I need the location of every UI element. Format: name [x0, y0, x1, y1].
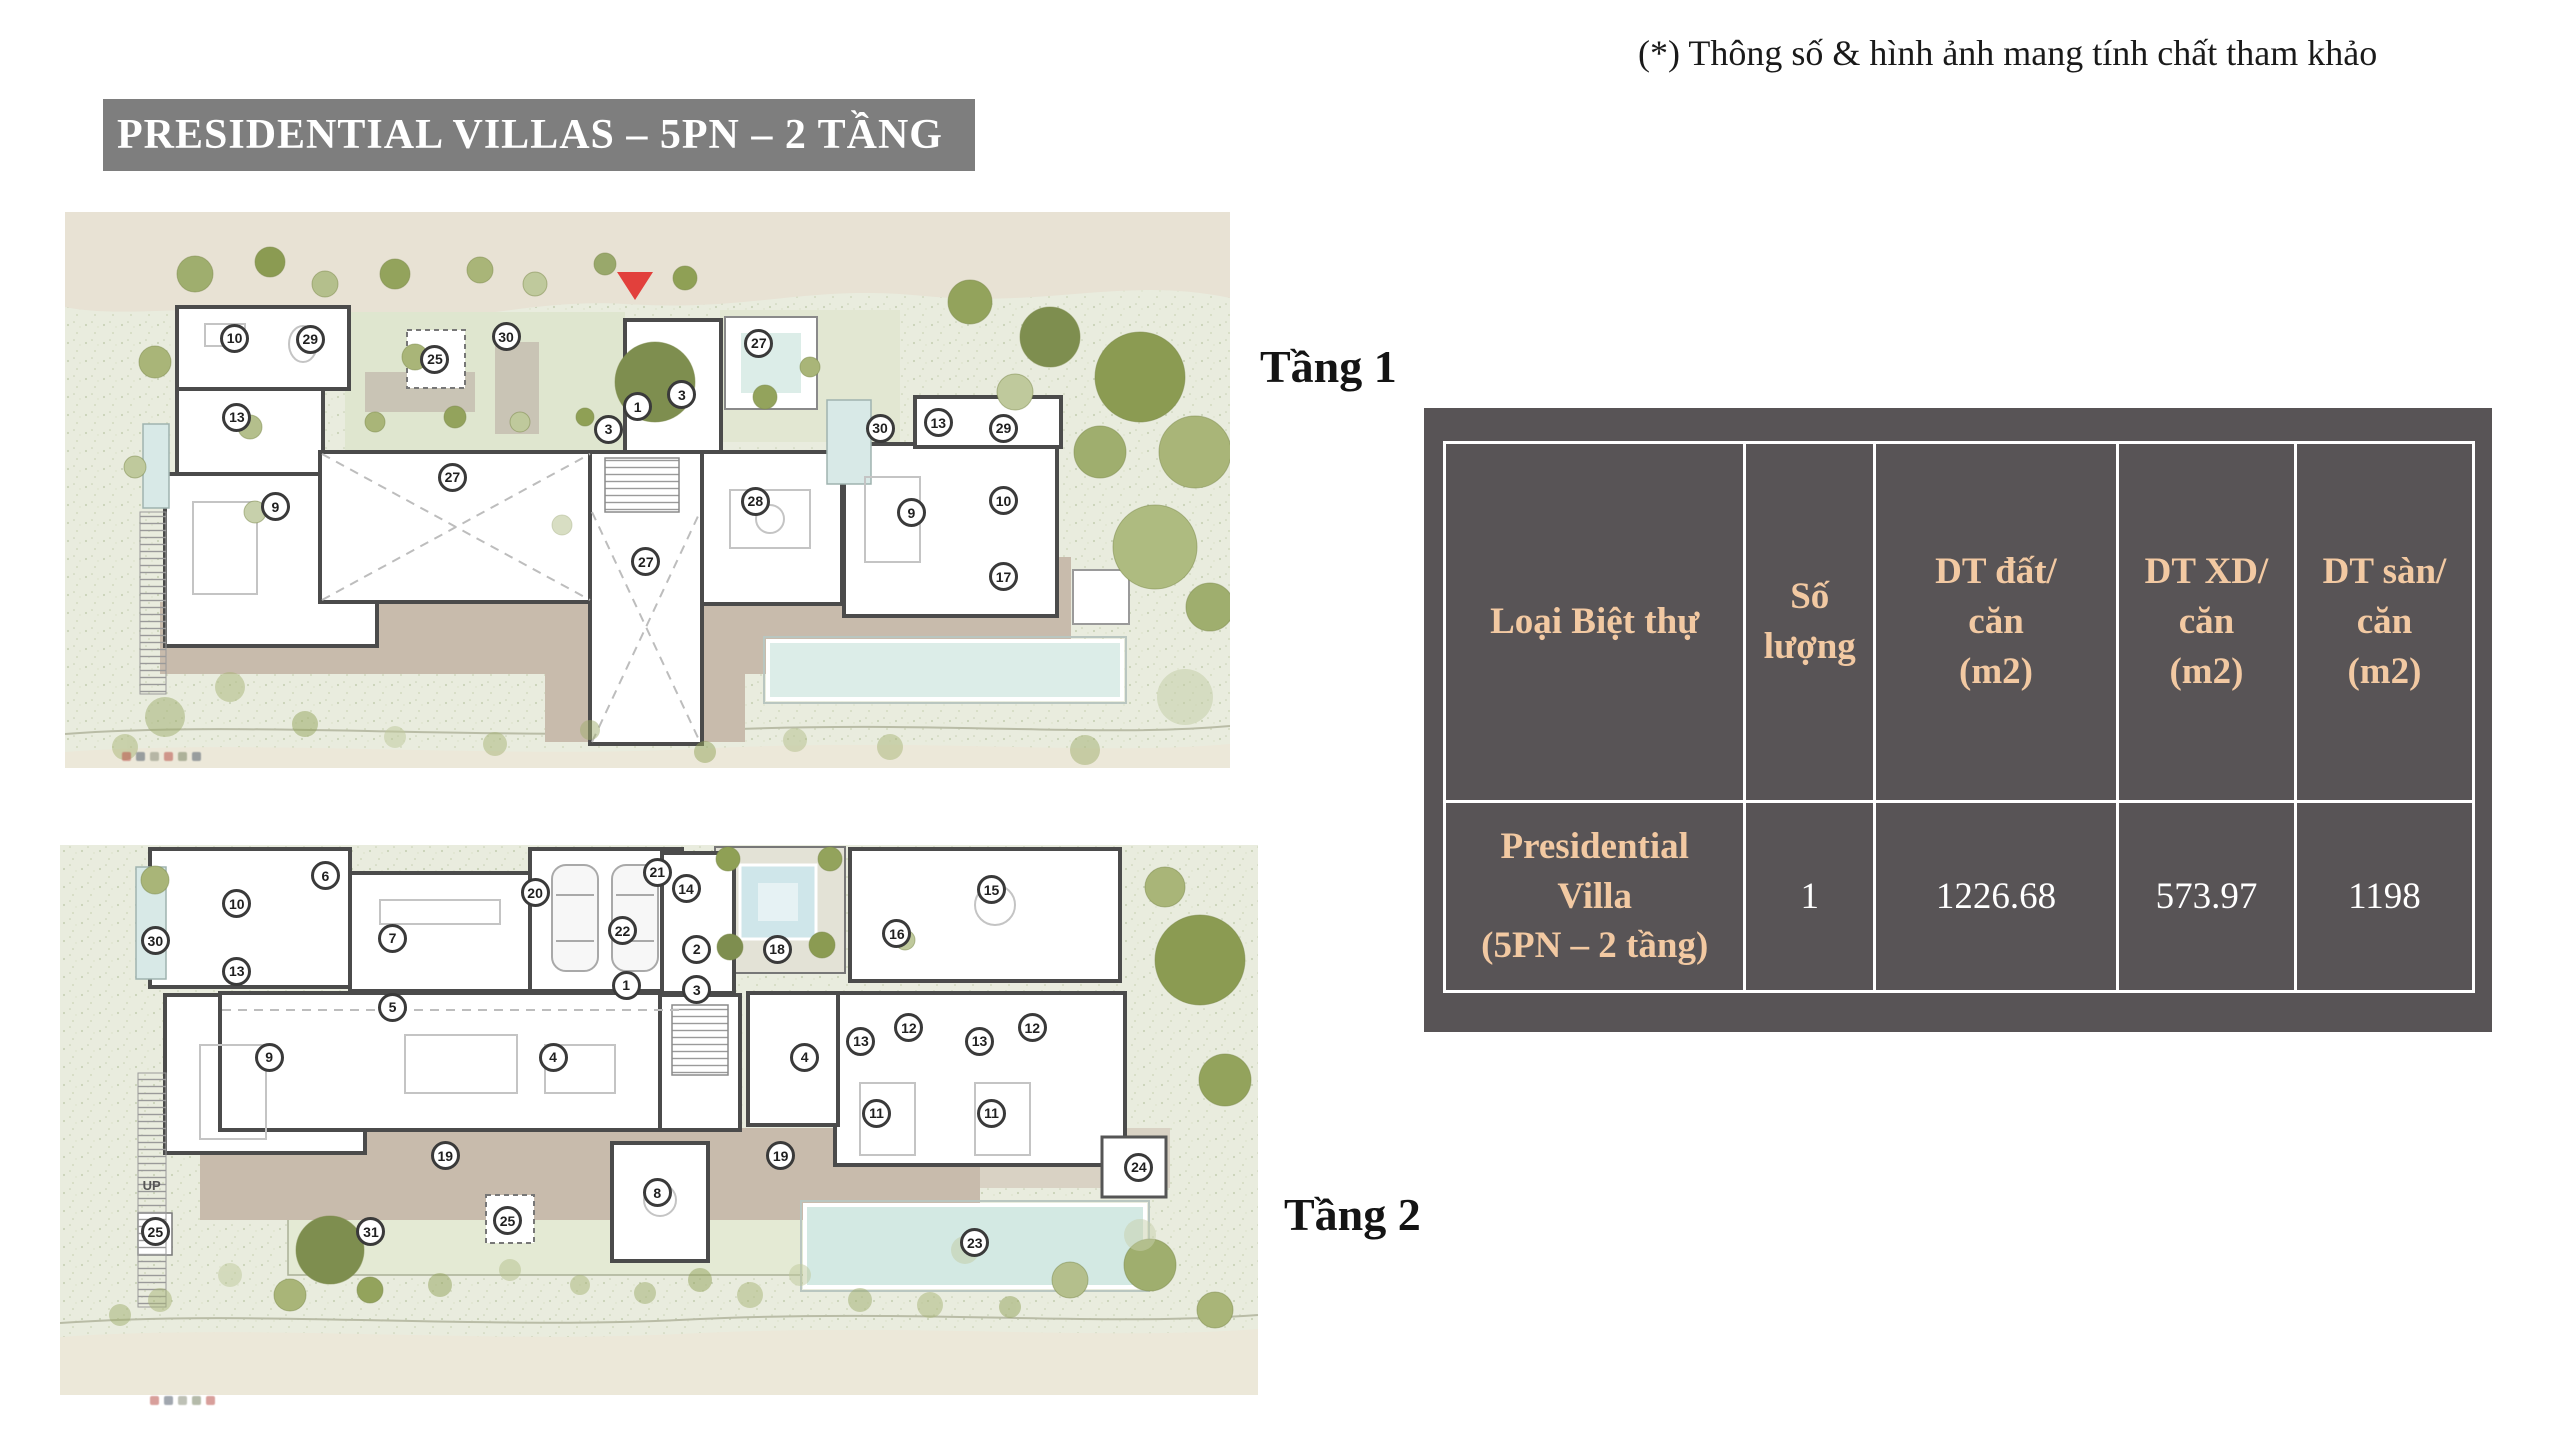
- plan-marker: 15: [977, 875, 1006, 904]
- cell-floor-area: 1198: [2295, 802, 2473, 992]
- plan-marker: 9: [255, 1043, 284, 1072]
- plan-marker: 24: [1124, 1153, 1153, 1182]
- cell-build-area: 573.97: [2117, 802, 2295, 992]
- plan-marker: 30: [866, 414, 895, 443]
- plan-marker: 13: [222, 403, 251, 432]
- plan2-markers: 6103013720211422218161513594413121312111…: [60, 845, 1258, 1395]
- plan-marker: 27: [438, 463, 467, 492]
- plan-marker: 7: [378, 924, 407, 953]
- disclaimer-note: (*) Thông số & hình ảnh mang tính chất t…: [1638, 32, 2498, 74]
- floor-1-label: Tầng 1: [1260, 340, 1397, 393]
- cell-villa-type: Presidential Villa (5PN – 2 tầng): [1445, 802, 1745, 992]
- plan-marker: 10: [222, 889, 251, 918]
- plan-marker: 19: [431, 1141, 460, 1170]
- watermark-marks: [150, 1396, 215, 1408]
- plan-marker: 13: [965, 1027, 994, 1056]
- plan-marker: 2: [682, 935, 711, 964]
- plan-marker: 28: [741, 487, 770, 516]
- plan-marker: 29: [989, 414, 1018, 443]
- title-banner: PRESIDENTIAL VILLAS – 5PN – 2 TẦNG: [103, 99, 975, 171]
- plan-marker: 29: [296, 325, 325, 354]
- plan-marker: 11: [977, 1099, 1006, 1128]
- plan-marker: 4: [790, 1043, 819, 1072]
- plan-marker: 3: [594, 415, 623, 444]
- floor-plan-1: 102925302713133301329279289102717: [65, 212, 1230, 768]
- plan1-markers: 102925302713133301329279289102717: [65, 212, 1230, 768]
- header-build-area: DT XD/ căn (m2): [2117, 443, 2295, 802]
- plan-marker: 19: [766, 1141, 795, 1170]
- floor-plan-2: 6103013720211422218161513594413121312111…: [60, 845, 1258, 1395]
- header-villa-type: Loại Biệt thự: [1445, 443, 1745, 802]
- plan-marker: 30: [141, 926, 170, 955]
- plan-marker: 4: [539, 1043, 568, 1072]
- spec-table: Loại Biệt thự Số lượng DT đất/ căn (m2) …: [1424, 408, 2492, 1032]
- plan-marker: 10: [220, 324, 249, 353]
- table-header-row: Loại Biệt thự Số lượng DT đất/ căn (m2) …: [1445, 443, 2474, 802]
- plan-marker: 13: [846, 1027, 875, 1056]
- cell-land-area: 1226.68: [1875, 802, 2118, 992]
- plan-marker: 20: [521, 878, 550, 907]
- cell-quantity: 1: [1745, 802, 1875, 992]
- plan-marker: 16: [882, 919, 911, 948]
- floor-2-label: Tầng 2: [1284, 1188, 1421, 1241]
- plan-marker: 13: [924, 408, 953, 437]
- plan-marker: 27: [631, 547, 660, 576]
- plan-marker: 13: [222, 957, 251, 986]
- plan-marker: 25: [493, 1206, 522, 1235]
- plan-marker: 18: [763, 935, 792, 964]
- plan-marker: 1: [612, 971, 641, 1000]
- page-title: PRESIDENTIAL VILLAS – 5PN – 2 TẦNG: [117, 111, 943, 159]
- stairs-up-label: UP: [143, 1178, 161, 1193]
- plan-marker: 30: [492, 322, 521, 351]
- plan-marker: 31: [356, 1217, 385, 1246]
- plan-marker: 17: [989, 562, 1018, 591]
- plan-marker: 1: [623, 392, 652, 421]
- plan-marker: 14: [672, 874, 701, 903]
- plan-marker: 12: [894, 1013, 923, 1042]
- plan-marker: 25: [141, 1217, 170, 1246]
- plan-marker: 27: [744, 329, 773, 358]
- plan-marker: 12: [1018, 1013, 1047, 1042]
- plan-marker: 10: [989, 486, 1018, 515]
- plan-marker: 3: [682, 975, 711, 1004]
- plan-marker: 8: [643, 1178, 672, 1207]
- plan-marker: 11: [862, 1099, 891, 1128]
- header-land-area: DT đất/ căn (m2): [1875, 443, 2118, 802]
- plan-marker: 3: [667, 380, 696, 409]
- plan-marker: 22: [608, 916, 637, 945]
- plan-marker: 21: [643, 858, 672, 887]
- header-floor-area: DT sàn/ căn (m2): [2295, 443, 2473, 802]
- plan-marker: 9: [261, 492, 290, 521]
- slide: (*) Thông số & hình ảnh mang tính chất t…: [0, 0, 2560, 1440]
- table-row: Presidential Villa (5PN – 2 tầng) 1 1226…: [1445, 802, 2474, 992]
- plan-marker: 25: [420, 345, 449, 374]
- watermark-marks: [122, 752, 201, 764]
- plan-marker: 23: [960, 1228, 989, 1257]
- plan-marker: 9: [897, 498, 926, 527]
- plan-marker: 6: [311, 861, 340, 890]
- header-quantity: Số lượng: [1745, 443, 1875, 802]
- plan-marker: 5: [378, 993, 407, 1022]
